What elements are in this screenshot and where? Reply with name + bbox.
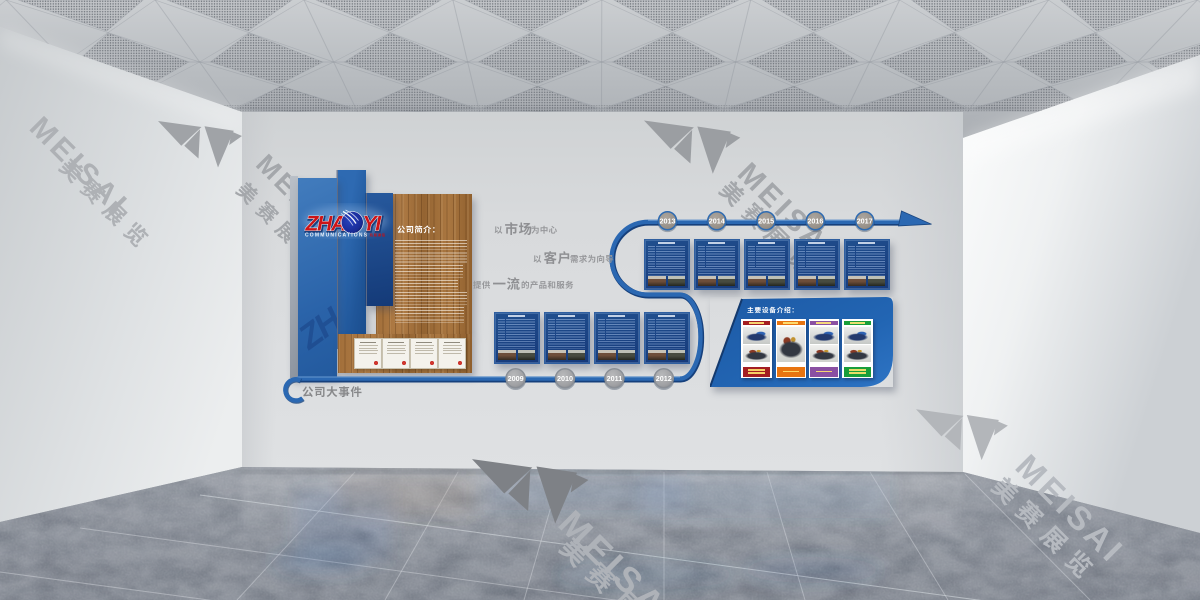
svg-text:2012: 2012 (656, 374, 672, 383)
svg-text:2011: 2011 (607, 374, 623, 383)
svg-text:2017: 2017 (857, 216, 873, 225)
svg-text:2009: 2009 (508, 374, 524, 383)
svg-text:2013: 2013 (660, 216, 676, 225)
svg-text:2010: 2010 (557, 374, 573, 383)
svg-text:COMMUNICATIONS: COMMUNICATIONS (305, 233, 368, 239)
svg-text:2016: 2016 (807, 216, 823, 225)
svg-text:2014: 2014 (709, 216, 725, 225)
svg-text:2015: 2015 (758, 216, 774, 225)
